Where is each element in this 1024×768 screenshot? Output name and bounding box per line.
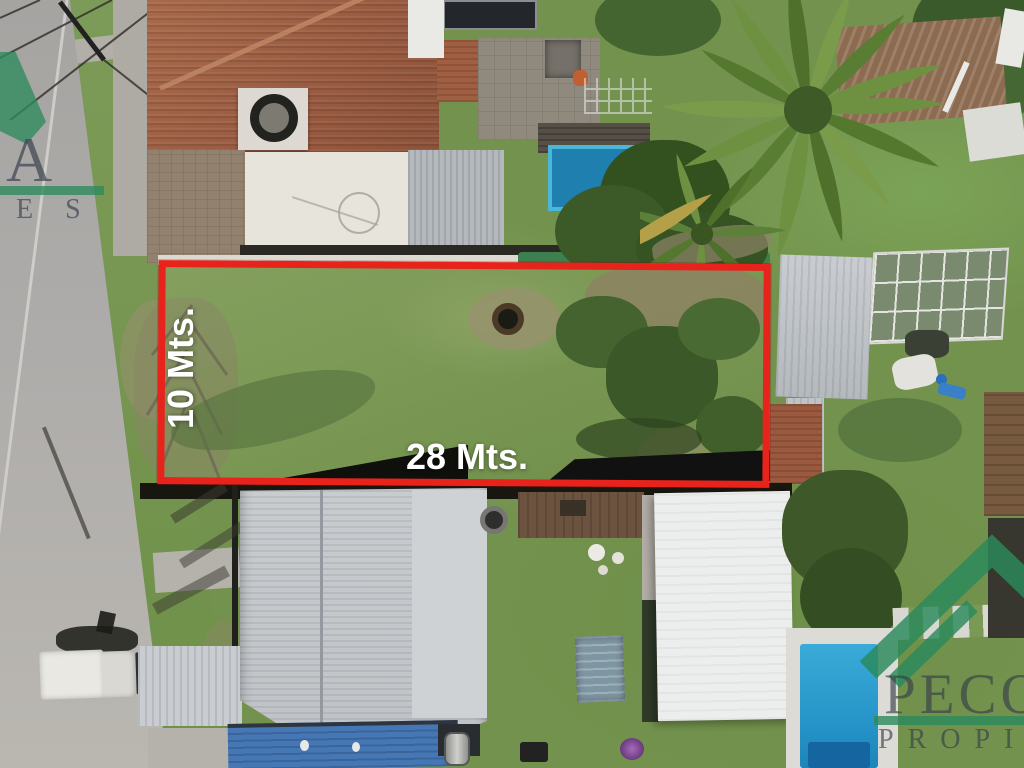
water-tank — [480, 506, 508, 534]
brand-subtitle-fragment: ES — [16, 194, 113, 226]
brick-paved-yard — [147, 150, 245, 263]
large-white-roof — [654, 491, 794, 721]
white-chair — [598, 565, 608, 575]
aerial-photo: 10 Mts. 28 Mts. A ES PECO PROPIE — [0, 0, 1024, 768]
purple-flower-bush — [620, 738, 644, 760]
deck-furniture — [560, 500, 586, 516]
blue-objects — [937, 382, 967, 400]
wooden-shed — [984, 392, 1024, 516]
terracotta-roof-fragment — [770, 404, 822, 484]
metal-roof-right — [776, 254, 873, 399]
solar-panel — [443, 0, 537, 30]
palm-tree — [640, 0, 972, 290]
water-tank — [250, 94, 298, 142]
small-gray-roof — [138, 646, 242, 726]
garage-metal-roof — [408, 150, 504, 255]
roof-panel-seam — [320, 490, 323, 732]
brand-name-fragment: A — [6, 128, 52, 192]
roof-smooth-section — [412, 490, 487, 718]
white-roof-section — [408, 0, 444, 58]
brand-name-fragment: PECO — [884, 666, 1024, 723]
parked-truck — [39, 644, 143, 704]
cylindrical-tank — [444, 732, 470, 766]
blue-metal-roof — [228, 720, 459, 768]
brand-subtitle-fragment: PROPIE — [878, 724, 1024, 756]
white-table — [588, 544, 605, 561]
truck-cargo-box — [39, 650, 105, 700]
weathered-shed-roof — [575, 635, 625, 703]
roof-vent — [352, 742, 360, 752]
white-chair — [612, 552, 624, 564]
truck-cab — [101, 650, 139, 697]
tree-shadow — [838, 398, 962, 462]
pool-deep-end — [808, 742, 870, 768]
utility-pole — [60, 2, 104, 60]
yard-object — [520, 742, 548, 762]
white-tarp — [890, 352, 940, 392]
roof-vent — [300, 740, 309, 751]
